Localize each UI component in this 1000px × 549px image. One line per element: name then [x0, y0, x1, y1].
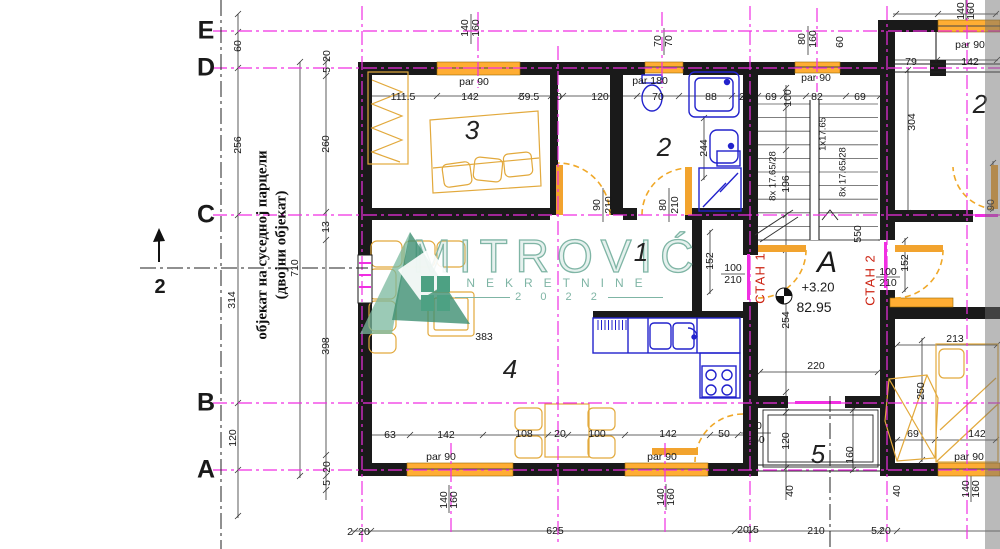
dim-label: 80 — [658, 199, 669, 211]
dim-label: 80 — [750, 421, 762, 432]
wardrobe — [368, 72, 408, 164]
grid-letter: C — [197, 203, 215, 228]
apartment-label: СТАН 2 — [864, 254, 877, 305]
dim-label: 2 — [347, 527, 353, 538]
dim-label: 314 — [227, 291, 238, 309]
dim-label: 70 — [653, 35, 664, 47]
unit-name: А — [817, 248, 837, 278]
grid-letter: D — [197, 56, 215, 81]
dim-label: 40 — [892, 485, 903, 497]
room-number: 1 — [634, 239, 648, 265]
dim-label: 210 — [879, 278, 897, 289]
dim-label: 69 — [854, 92, 866, 103]
section-arrow — [153, 228, 165, 262]
apartment-label: СТАН 1 — [754, 252, 767, 303]
dim-label: 69 — [907, 429, 919, 440]
dim-label: par 90 — [954, 452, 984, 463]
dim-label: 108 — [515, 429, 533, 440]
dim-label: 1x17.65 — [818, 117, 828, 151]
dim-label: 260 — [321, 135, 332, 153]
dim-label: 88 — [705, 92, 717, 103]
dim-label: 210 — [724, 275, 742, 286]
dim-label: 142 — [961, 57, 979, 68]
side-note-line2: (двојни објекат) — [275, 191, 290, 300]
dim-label: 210 — [604, 196, 615, 214]
dim-label: 20 — [322, 461, 333, 473]
dim-label: 213 — [946, 334, 964, 345]
dim-label: 160 — [471, 19, 482, 37]
dim-label: 20 — [554, 429, 566, 440]
dim-label: 13 — [321, 221, 332, 233]
dim-label: 304 — [907, 113, 918, 131]
watermark-logo-icon — [352, 224, 477, 336]
dim-label: 20 — [322, 50, 333, 62]
watermark-rule-right — [608, 297, 663, 298]
grid-letter: A — [197, 458, 215, 483]
kitchen-counter — [593, 318, 740, 398]
dim-label: 50 — [718, 429, 730, 440]
dim-label: 20 — [358, 527, 370, 538]
dim-label: 254 — [781, 311, 792, 329]
room-number: 3 — [465, 117, 479, 143]
dim-label: 5 — [322, 67, 333, 73]
dim-label: 100 — [783, 89, 794, 107]
dim-label: 100 — [879, 267, 897, 278]
dim-label: 220 — [807, 361, 825, 372]
dim-label: par 90 — [459, 77, 489, 88]
dim-label: par 180 — [632, 76, 668, 87]
dim-label: 111.5 — [391, 92, 416, 103]
dim-label: 70 — [664, 35, 675, 47]
dim-label: 90 — [592, 199, 603, 211]
room-number: 4 — [503, 356, 517, 382]
room-number: 5 — [811, 441, 825, 467]
room-number: 2 — [657, 134, 671, 160]
unit-level: +3.20 — [802, 281, 835, 294]
dim-label: 120 — [591, 92, 609, 103]
dim-label: 160 — [449, 491, 460, 509]
dim-label: 80 — [797, 33, 808, 45]
dim-label: par 90 — [647, 452, 677, 463]
dim-label: par 90 — [426, 452, 456, 463]
dim-label: par 90 — [955, 40, 985, 51]
dim-label: 120 — [228, 429, 239, 447]
dim-label: 710 — [290, 259, 301, 277]
washing-machine — [699, 151, 741, 211]
dim-label: 69 — [765, 92, 777, 103]
grid-letter: E — [198, 19, 215, 44]
dim-label: 15 — [747, 525, 759, 536]
dim-label: 256 — [233, 136, 244, 154]
dim-label: 210 — [807, 526, 825, 537]
dim-label: 20 — [879, 526, 891, 537]
dim-label: 79 — [905, 57, 917, 68]
watermark-year: 2 0 2 2 — [515, 291, 605, 303]
dim-label: 160 — [808, 30, 819, 48]
dim-label: 142 — [437, 430, 455, 441]
dim-label: 8x 17.65/28 — [768, 151, 778, 201]
dim-label: 120 — [781, 432, 792, 450]
dim-label: 152 — [900, 254, 911, 272]
dim-label: 142 — [659, 429, 677, 440]
dim-label: 142 — [968, 429, 986, 440]
grid-letter: B — [197, 391, 215, 416]
dim-label: 60 — [233, 40, 244, 52]
side-note-line1: објекат на суседној парцели — [256, 150, 271, 339]
dim-label: 140 — [460, 19, 471, 37]
dim-label: 160 — [845, 446, 856, 464]
bathroom-sink — [710, 130, 738, 163]
dim-label: 142 — [461, 92, 479, 103]
dim-label: 550 — [853, 225, 864, 243]
dim-label: 60 — [835, 36, 846, 48]
dim-label: 63 — [384, 430, 396, 441]
dim-label: 250 — [747, 435, 765, 446]
right-edge-overlay — [985, 0, 1000, 549]
dim-label: 5 — [871, 526, 877, 537]
level-marker — [776, 288, 792, 304]
bed — [430, 111, 541, 193]
floor-plan-page: MITROVIĆ NEKRETNINE 2 0 2 2 објекат на с… — [0, 0, 1000, 549]
dim-label: 250 — [916, 382, 927, 400]
dim-label: 70 — [652, 92, 664, 103]
dim-label: 160 — [971, 480, 982, 498]
watermark-subtitle: NEKRETNINE — [466, 276, 653, 290]
dim-label: 160 — [666, 488, 677, 506]
dim-label: par 90 — [801, 73, 831, 84]
dim-label: 625 — [546, 526, 564, 537]
dim-label: 160 — [966, 2, 977, 20]
dim-label: 82 — [811, 92, 823, 103]
dim-label: 383 — [475, 332, 493, 343]
dim-label: 100 — [724, 263, 742, 274]
dim-label: 5 — [322, 480, 333, 486]
dim-label: 152 — [705, 252, 716, 270]
dim-label: 8x 17.65/28 — [838, 147, 848, 197]
dim-label: 20 — [739, 92, 751, 103]
dim-label: 40 — [785, 485, 796, 497]
dim-label: 210 — [670, 196, 681, 214]
dim-label: 59.5 — [519, 92, 539, 103]
dim-label: 100 — [588, 429, 606, 440]
stove — [702, 366, 736, 397]
section-mark-number: 2 — [154, 277, 165, 297]
unit-area: 82.95 — [796, 300, 831, 314]
dim-label: 244 — [699, 139, 710, 157]
dim-label: 20 — [550, 92, 562, 103]
dim-label: 196 — [781, 175, 792, 193]
dim-label: 398 — [321, 337, 332, 355]
